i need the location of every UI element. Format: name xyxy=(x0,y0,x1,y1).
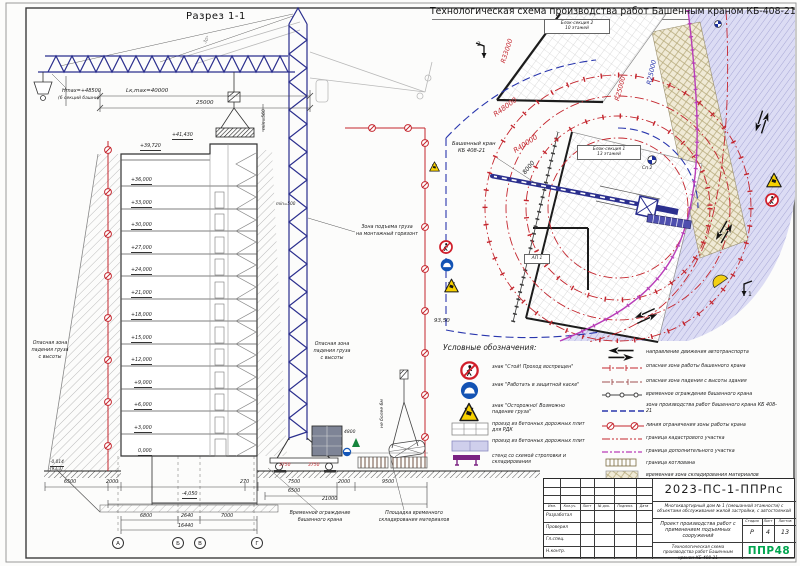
dim-6500-left: 6500 xyxy=(64,480,76,486)
danger-zone-left-label: Опасная зона xyxy=(28,341,72,347)
level-mark: +12,000 xyxy=(131,358,152,365)
axis-bubble-v: В xyxy=(194,537,206,549)
dim-16440: 16440 xyxy=(178,524,193,530)
stamp-sheet-count: 13 xyxy=(774,529,796,537)
block1-tag: Блок-секция 1 13 этажей xyxy=(577,145,641,160)
lift-zone-label2: на монтажный горизонт xyxy=(349,232,425,238)
crane-jib xyxy=(38,56,295,72)
storage-yard xyxy=(343,370,428,468)
level-mark: 0,000 xyxy=(138,449,152,456)
dim-6800: 6800 xyxy=(140,514,152,520)
dim-hmax: Hmax=+48500 xyxy=(62,89,101,95)
level-mark: +36,000 xyxy=(131,178,152,185)
stamp-role-checker: Проверил xyxy=(546,525,568,530)
fence-label2: башенного крана xyxy=(284,518,356,524)
dim-6500-mid: 6500 xyxy=(288,489,300,495)
danger-crane-line-icon xyxy=(602,365,642,371)
dim-7500: 7500 xyxy=(288,480,300,486)
warning-sign-icon xyxy=(460,404,478,421)
legend-item-label: граница дополнительного участка xyxy=(646,449,796,455)
ap1-tag: АП 1 xyxy=(524,254,550,264)
warning-sign-icon xyxy=(430,162,440,171)
legend-item-label: зона производства работ башенного крана … xyxy=(646,403,778,414)
dim-25000: 25000 xyxy=(196,100,214,106)
legend-item-label: проезд из бетонных дорожных плит для РДК xyxy=(492,422,592,433)
dim-7000: 7000 xyxy=(221,514,233,520)
stamp-role-developer: Разработал xyxy=(546,513,572,518)
danger-zone-left-label3: с высоты xyxy=(28,355,72,361)
top-dimensions xyxy=(66,76,313,132)
dim-21000: 21000 xyxy=(322,497,337,503)
level-mark: +18,000 xyxy=(131,313,152,320)
company-logo: ППР48 xyxy=(742,545,796,558)
danger-hatch-right xyxy=(257,150,287,456)
axis-bubble-b: Б xyxy=(172,537,184,549)
stop-sign-icon xyxy=(766,194,778,206)
danger-zone-left-label2: падения груза xyxy=(28,348,72,354)
legend-item-label: знак "Осторожно! Возможно падение груза" xyxy=(492,404,587,415)
stamp-col-podpis: Подпись xyxy=(614,504,636,508)
level-mark: +33,000 xyxy=(131,201,152,208)
level-mark: +3,000 xyxy=(134,426,152,433)
dim-rail-right: 3750 xyxy=(308,463,319,468)
traffic-arrows-icon xyxy=(608,347,633,361)
danger-zone-right-label3: с высоты xyxy=(310,356,354,362)
dim-4800: 4800 xyxy=(344,430,355,435)
stop-sign-icon xyxy=(461,362,477,378)
legend-item-label: опасная зона работы башенного крана xyxy=(646,364,796,370)
legend-item-label: линия ограничения зоны работы крана xyxy=(646,423,796,429)
pit-line-icon xyxy=(606,459,636,466)
danger-zone-right-label2: падения груза xyxy=(310,349,354,355)
stamp-sheet-number: 4 xyxy=(762,529,774,537)
legend-item-label: опасная зона падения с высоты здания xyxy=(646,379,796,385)
danger-hatch-left xyxy=(48,154,120,471)
stand-icon xyxy=(453,455,480,465)
stamp-work-title: Проект производства работ с применением … xyxy=(656,522,740,539)
marker-1-label: 1 xyxy=(748,292,752,299)
dim-2000-right: 2000 xyxy=(338,480,350,486)
dim-2640: 2640 xyxy=(181,514,193,520)
warning-sign-icon xyxy=(445,279,459,292)
stop-sign-icon xyxy=(440,241,452,253)
survey-point-label: Сп 2 xyxy=(642,166,652,171)
legend-item-label: граница котлована xyxy=(646,461,796,467)
crane-ghost-lines xyxy=(180,22,432,102)
block2-tag: Блок-секция 2 10 этажей xyxy=(544,19,610,34)
dim-hmax-note: (6 секций башни) xyxy=(58,96,100,101)
stamp-col-izm: Изм. xyxy=(544,504,560,508)
title-block: Изм. Кол.уч. Лист № док. Подпись Дата Ра… xyxy=(543,478,795,558)
plan-crane-label2: КБ 408-21 xyxy=(458,149,485,155)
road-slab-icon xyxy=(452,441,488,451)
stockyard-label2: складирования материалов xyxy=(372,518,456,524)
dim-270: 270 xyxy=(240,480,249,486)
ground-level-mark2: (93,3) xyxy=(50,468,63,473)
dim-min560: min=560 xyxy=(262,109,267,130)
ground xyxy=(44,471,540,478)
stamp-project-name: Многоквартирный дом № 1 (смешанной этажн… xyxy=(654,503,794,514)
danger-zone-right-label: Опасная зона xyxy=(310,342,354,348)
jib-end-pulley xyxy=(34,72,52,101)
level-mark: +27,000 xyxy=(131,246,152,253)
stamp-role-ncontrol: Н.контр. xyxy=(546,549,565,554)
level-mark: +9,000 xyxy=(134,381,152,388)
helmet-sign-icon xyxy=(441,259,454,272)
stamp-doc-number: 2023-ПС-1-ППРпс xyxy=(652,483,796,497)
stamp-col-koluch: Кол.уч. xyxy=(560,504,580,508)
fence-label: Временное ограждение xyxy=(284,511,356,517)
legend-item-label: знак "Стой! Проход воспрещен" xyxy=(492,365,596,371)
dim-min500: min=500 xyxy=(276,202,295,207)
plan-title: Технологическая схема производства работ… xyxy=(430,6,794,17)
stamp-role-chief: Гл.спец. xyxy=(546,537,565,542)
block2-floors: 10 этажей xyxy=(547,26,607,31)
dim-2000-left: 2000 xyxy=(106,480,118,486)
dim-rail-left: 3750 xyxy=(279,463,290,468)
stockyard-label: Площадка временного xyxy=(372,511,456,517)
jib-ties xyxy=(60,14,293,66)
legend-heading: Условные обозначения: xyxy=(443,344,536,353)
drawing-sheet: Разрез 1-1 Технологическая схема произво… xyxy=(0,0,800,566)
marker-2-label: 2 xyxy=(477,42,481,49)
plan-level-mark: 93,50 xyxy=(434,318,450,324)
level-mark: +39,720 xyxy=(140,144,161,151)
stamp-list-header: Лист xyxy=(762,519,774,523)
legend-item-label: проезд из бетонных дорожных плит xyxy=(492,439,592,445)
legend-item-label: временное ограждение башенного крана xyxy=(646,392,796,398)
road-slab-rdk-icon xyxy=(452,423,488,435)
load-limit-label: не более 6м xyxy=(380,399,385,428)
lift-zone-label: Зона подъема груза xyxy=(352,225,422,231)
stamp-col-data: Дата xyxy=(636,504,652,508)
level-mark: +15,000 xyxy=(131,336,152,343)
legend-item-label: знак "Работать в защитной каске" xyxy=(492,383,587,389)
site-plan xyxy=(430,10,795,342)
limit-line-icon xyxy=(602,423,644,430)
helmet-sign-icon xyxy=(461,382,478,399)
stamp-stage-header: Стадия xyxy=(742,519,762,523)
legend-item-label: направление движения автотранспорта xyxy=(646,350,796,356)
level-mark: +30,000 xyxy=(131,223,152,230)
dim-9500: 9500 xyxy=(382,480,394,486)
block1-floors: 13 этажей xyxy=(580,152,638,157)
dim-lkmax: Lк,max=40000 xyxy=(126,88,168,94)
trolley-hook-load xyxy=(216,72,254,137)
stamp-sheet-title: Технологическая схема производства работ… xyxy=(656,544,740,560)
level-mark: +24,000 xyxy=(131,268,152,275)
legend-item-label: граница кадастрового участка xyxy=(646,436,796,442)
danger-fall-line-icon xyxy=(602,379,642,385)
stamp-col-list: Лист xyxy=(580,504,594,508)
crane-tower xyxy=(289,8,307,440)
level-mark: +6,000 xyxy=(134,403,152,410)
legend-item-label: стенд со схемой строповки и складировани… xyxy=(492,454,592,465)
level-mark: +41,430 xyxy=(172,133,193,140)
stamp-stage-value: Р xyxy=(742,529,762,537)
level-mark: +21,000 xyxy=(131,291,152,298)
axis-bubble-g: Г xyxy=(251,537,263,549)
axis-bubble-a: А xyxy=(112,537,124,549)
fence-line-icon xyxy=(602,393,642,397)
section-title: Разрез 1-1 xyxy=(186,11,246,22)
stamp-listov-header: Листов xyxy=(774,519,796,523)
level-mark: -4,050 xyxy=(182,492,197,499)
stamp-col-dok: № док. xyxy=(594,504,614,508)
